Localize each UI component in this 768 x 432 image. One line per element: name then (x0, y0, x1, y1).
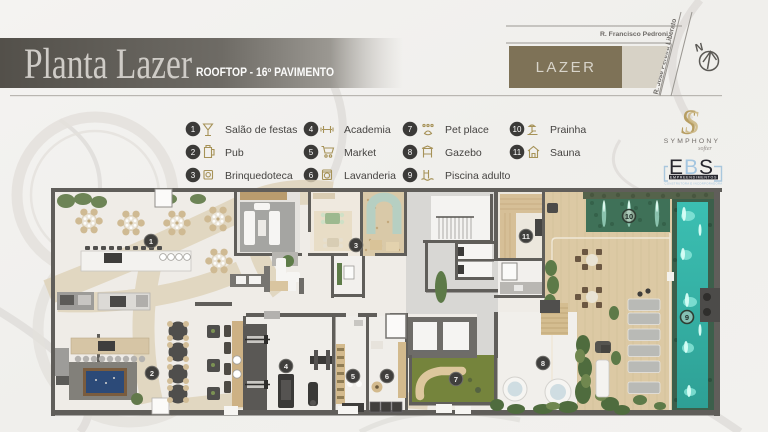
svg-text:Prainha: Prainha (550, 124, 586, 136)
svg-text:Pet place: Pet place (445, 124, 489, 136)
svg-text:Pub: Pub (225, 147, 244, 159)
svg-text:4: 4 (309, 125, 314, 134)
svg-text:11: 11 (513, 148, 522, 157)
svg-text:3: 3 (354, 241, 358, 250)
svg-text:7: 7 (408, 125, 413, 134)
svg-text:CONSTRUTORA E INCORPORADORA: CONSTRUTORA E INCORPORADORA (665, 182, 723, 186)
svg-text:S: S (685, 105, 699, 141)
svg-text:Salão de festas: Salão de festas (225, 124, 297, 136)
svg-text:8: 8 (408, 148, 413, 157)
svg-text:7: 7 (454, 375, 458, 384)
svg-text:9: 9 (685, 313, 689, 322)
svg-text:SYMPHONY: SYMPHONY (664, 138, 721, 145)
svg-text:5: 5 (351, 372, 355, 381)
svg-text:ROOFTOP - 16º PAVIMENTO: ROOFTOP - 16º PAVIMENTO (196, 67, 334, 79)
svg-text:Piscina adulto: Piscina adulto (445, 170, 511, 182)
svg-text:Brinquedoteca: Brinquedoteca (225, 170, 293, 182)
svg-text:11: 11 (522, 232, 530, 241)
svg-text:Lavanderia: Lavanderia (344, 170, 396, 182)
svg-text:2: 2 (191, 148, 196, 157)
svg-text:1: 1 (191, 125, 196, 134)
svg-text:10: 10 (513, 125, 522, 134)
svg-text:8: 8 (541, 359, 545, 368)
svg-text:5: 5 (309, 148, 314, 157)
svg-text:9: 9 (408, 171, 413, 180)
svg-text:6: 6 (385, 372, 389, 381)
svg-text:Academia: Academia (344, 124, 391, 136)
svg-text:LAZER: LAZER (536, 59, 597, 76)
svg-text:Sauna: Sauna (550, 147, 581, 159)
svg-text:R. Francisco Pedroni: R. Francisco Pedroni (600, 31, 668, 38)
svg-text:6: 6 (309, 171, 314, 180)
svg-text:1: 1 (149, 237, 153, 246)
svg-text:2: 2 (150, 369, 154, 378)
svg-text:Planta Lazer: Planta Lazer (24, 41, 192, 88)
svg-text:3: 3 (191, 171, 196, 180)
svg-text:10: 10 (625, 212, 633, 221)
svg-text:EMPREENDIMENTOS: EMPREENDIMENTOS (670, 176, 717, 180)
svg-text:Market: Market (344, 147, 376, 159)
svg-text:softer: softer (698, 145, 712, 152)
svg-text:Gazebo: Gazebo (445, 147, 482, 159)
